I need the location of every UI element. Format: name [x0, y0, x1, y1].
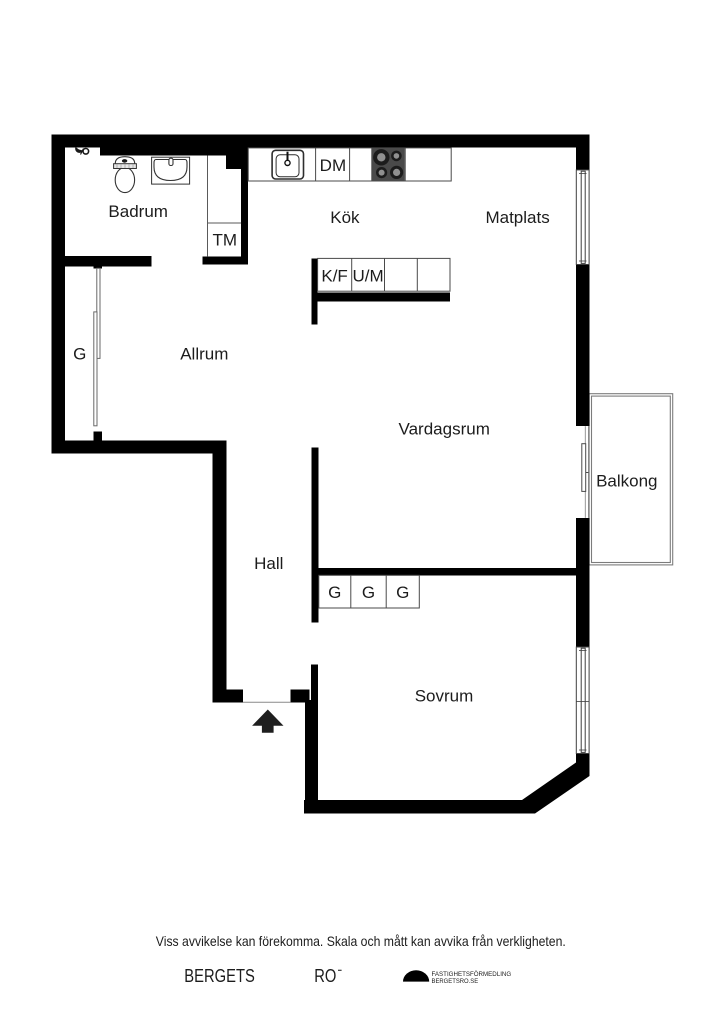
svg-text:K/F: K/F	[321, 267, 347, 286]
svg-text:Kök: Kök	[330, 208, 360, 227]
svg-text:Allrum: Allrum	[180, 345, 228, 364]
svg-text:Sovrum: Sovrum	[415, 687, 474, 706]
svg-text:FASTIGHETSFÖRMEDLING: FASTIGHETSFÖRMEDLING	[432, 970, 512, 978]
svg-text:Matplats: Matplats	[485, 208, 549, 227]
svg-text:Hall: Hall	[254, 554, 283, 573]
svg-text:Balkong: Balkong	[596, 472, 657, 491]
svg-text:G: G	[73, 345, 86, 364]
svg-text:G: G	[328, 583, 341, 602]
svg-text:Vardagsrum: Vardagsrum	[399, 420, 490, 439]
svg-text:Viss avvikelse kan förekomma.: Viss avvikelse kan förekomma. Skala och …	[156, 933, 566, 949]
svg-text:BERGETSRO.SE: BERGETSRO.SE	[432, 978, 479, 985]
svg-text:BERGETS: BERGETS	[184, 966, 255, 986]
svg-text:U/M: U/M	[353, 267, 384, 286]
svg-text:Badrum: Badrum	[108, 202, 168, 221]
svg-text:RO: RO	[314, 966, 336, 986]
svg-text:TM: TM	[213, 231, 238, 250]
svg-text:DM: DM	[320, 156, 346, 175]
svg-text:G: G	[362, 583, 375, 602]
svg-text:G: G	[396, 583, 409, 602]
